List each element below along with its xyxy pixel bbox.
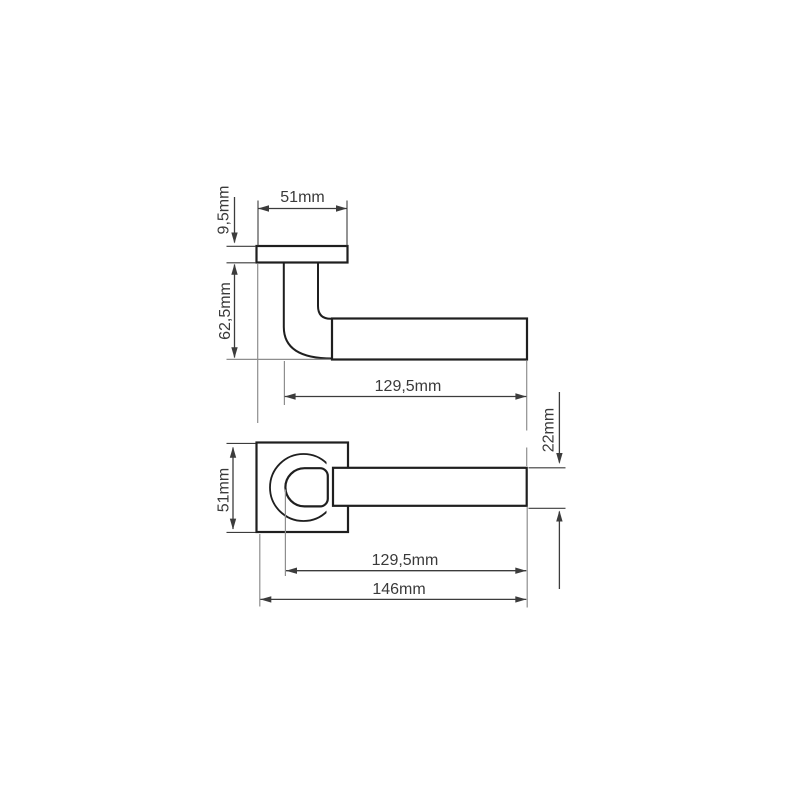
front-view [257,443,527,533]
dim-label-lever-length-front: 129,5mm [372,552,439,569]
arrowhead [258,205,269,211]
arrowhead [285,393,296,399]
arrowhead [556,453,562,464]
arrowhead [231,264,237,275]
arrowhead [260,596,271,602]
arrowhead [336,205,347,211]
neck-outer-line [284,263,332,359]
dim-label-overall-length: 146mm [372,581,425,598]
dim-label-rose-thickness: 9,5mm [216,186,233,235]
arrowhead [230,519,236,530]
rose-profile [257,246,348,263]
arrowhead [231,347,237,358]
lever-profile [332,319,527,360]
arrowhead [515,596,526,602]
dim-label-lever-thickness: 22mm [541,408,558,452]
dim-label-lever-length-side: 129,5mm [375,378,442,395]
neck-front [285,468,327,506]
technical-drawing-canvas: 51mm 9,5mm 62,5mm 129,5mm [0,0,800,800]
arrowhead [556,511,562,522]
dim-label-rose-size: 51mm [216,468,233,512]
arrowhead [515,568,526,574]
arrowhead [515,393,526,399]
arrowhead [230,447,236,458]
neck-inner-line [318,263,333,319]
dim-label-handle-height: 62,5mm [217,282,234,340]
side-view [257,246,528,360]
arrowhead [286,568,297,574]
dim-label-rose-width: 51mm [280,189,324,206]
lever-front [333,468,527,506]
drawing-page: 51mm 9,5mm 62,5mm 129,5mm [0,0,800,800]
